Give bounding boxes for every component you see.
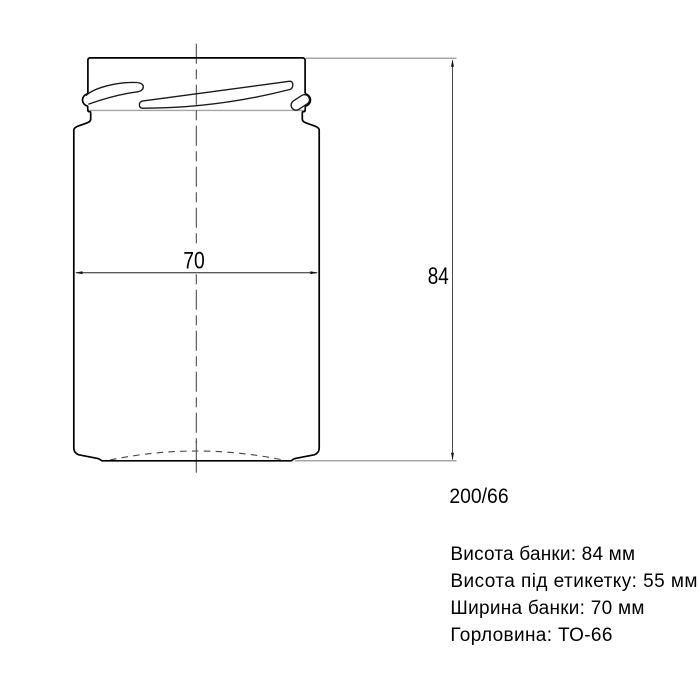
svg-text:84: 84 xyxy=(428,263,449,290)
svg-text:Ширина банки: 70 мм: Ширина банки: 70 мм xyxy=(450,598,644,619)
svg-text:70: 70 xyxy=(183,248,205,275)
svg-text:Висота банки: 84 мм: Висота банки: 84 мм xyxy=(450,544,635,565)
svg-text:200/66: 200/66 xyxy=(449,485,508,508)
svg-text:Горловина: ТО-66: Горловина: ТО-66 xyxy=(450,625,612,646)
svg-text:Висота під етикетку: 55 мм: Висота під етикетку: 55 мм xyxy=(450,571,697,592)
